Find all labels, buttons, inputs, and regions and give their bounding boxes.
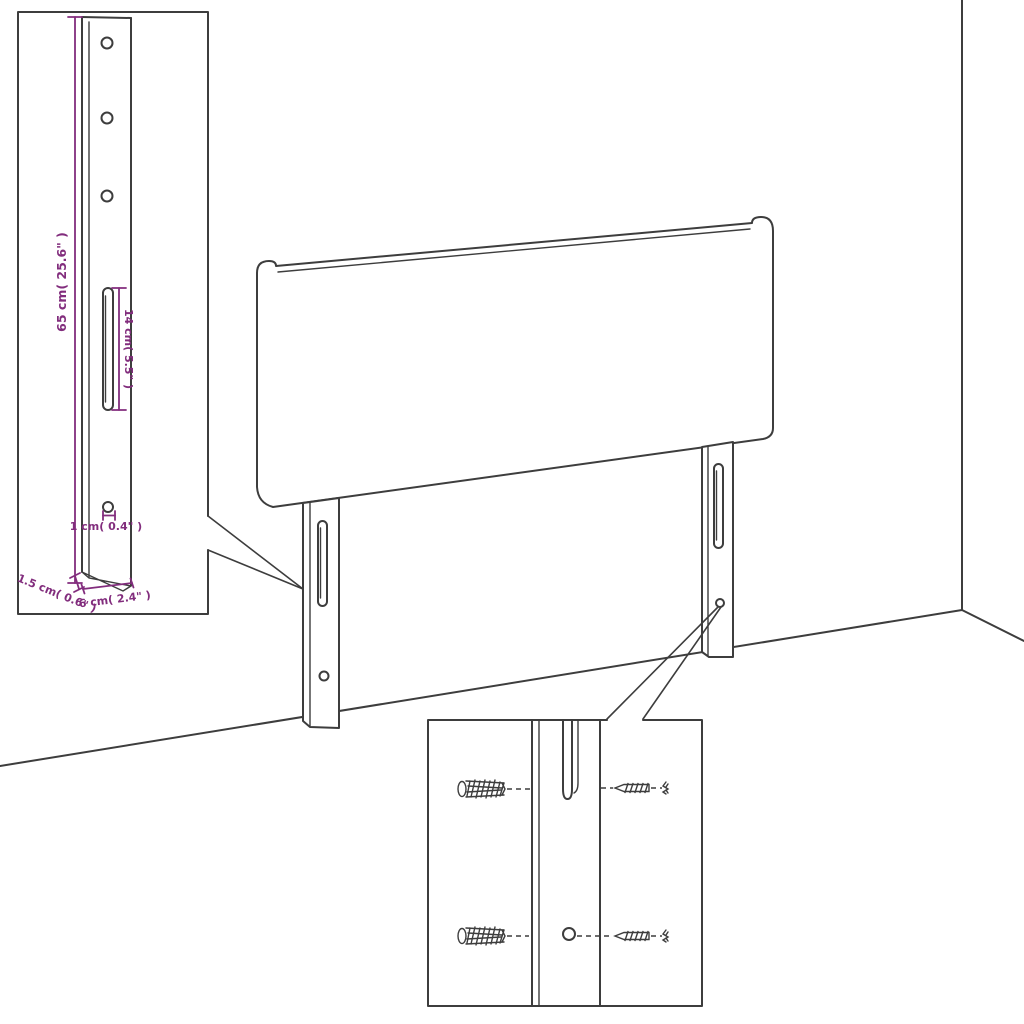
dimension-height: 65 cm( 25.6" ) bbox=[54, 17, 82, 583]
product-diagram: 65 cm( 25.6" ) 14 cm( 5.5" ) 1 cm( 0.4" … bbox=[0, 0, 1024, 1024]
headboard-outline bbox=[257, 217, 773, 507]
headboard-leg-right bbox=[702, 442, 733, 657]
detail-callout-left bbox=[208, 516, 303, 589]
hole-close-up bbox=[563, 928, 575, 940]
hardware-detail-inset bbox=[428, 720, 702, 1006]
dimension-label-width: 6 cm( 2.4" ) bbox=[78, 589, 151, 611]
dimension-label-slot: 14 cm( 5.5" ) bbox=[122, 309, 135, 389]
floor-line bbox=[0, 610, 1024, 766]
leg-slot bbox=[103, 288, 113, 410]
screw-icon bbox=[615, 930, 668, 942]
headboard-leg-left bbox=[303, 498, 339, 728]
headboard-panel bbox=[257, 217, 773, 507]
wall-plug-icon bbox=[458, 927, 505, 945]
headboard-assembly-drawing: 65 cm( 25.6" ) 14 cm( 5.5" ) 1 cm( 0.4" … bbox=[0, 0, 1024, 1024]
wall-plug-icon bbox=[458, 780, 505, 798]
inset-leg-strip bbox=[532, 720, 600, 1006]
mount-hole bbox=[102, 38, 113, 49]
mount-hole bbox=[102, 191, 113, 202]
mount-hole bbox=[102, 113, 113, 124]
inset-border bbox=[428, 720, 702, 1006]
screw-icon bbox=[615, 782, 668, 794]
slot-close-up bbox=[563, 720, 572, 799]
leg-hole bbox=[103, 502, 113, 512]
dimension-label-height: 65 cm( 25.6" ) bbox=[54, 232, 69, 332]
dimension-label-hole: 1 cm( 0.4" ) bbox=[70, 520, 142, 533]
inset-leg-drawing bbox=[82, 17, 131, 591]
leg-detail-inset: 65 cm( 25.6" ) 14 cm( 5.5" ) 1 cm( 0.4" … bbox=[15, 12, 208, 615]
